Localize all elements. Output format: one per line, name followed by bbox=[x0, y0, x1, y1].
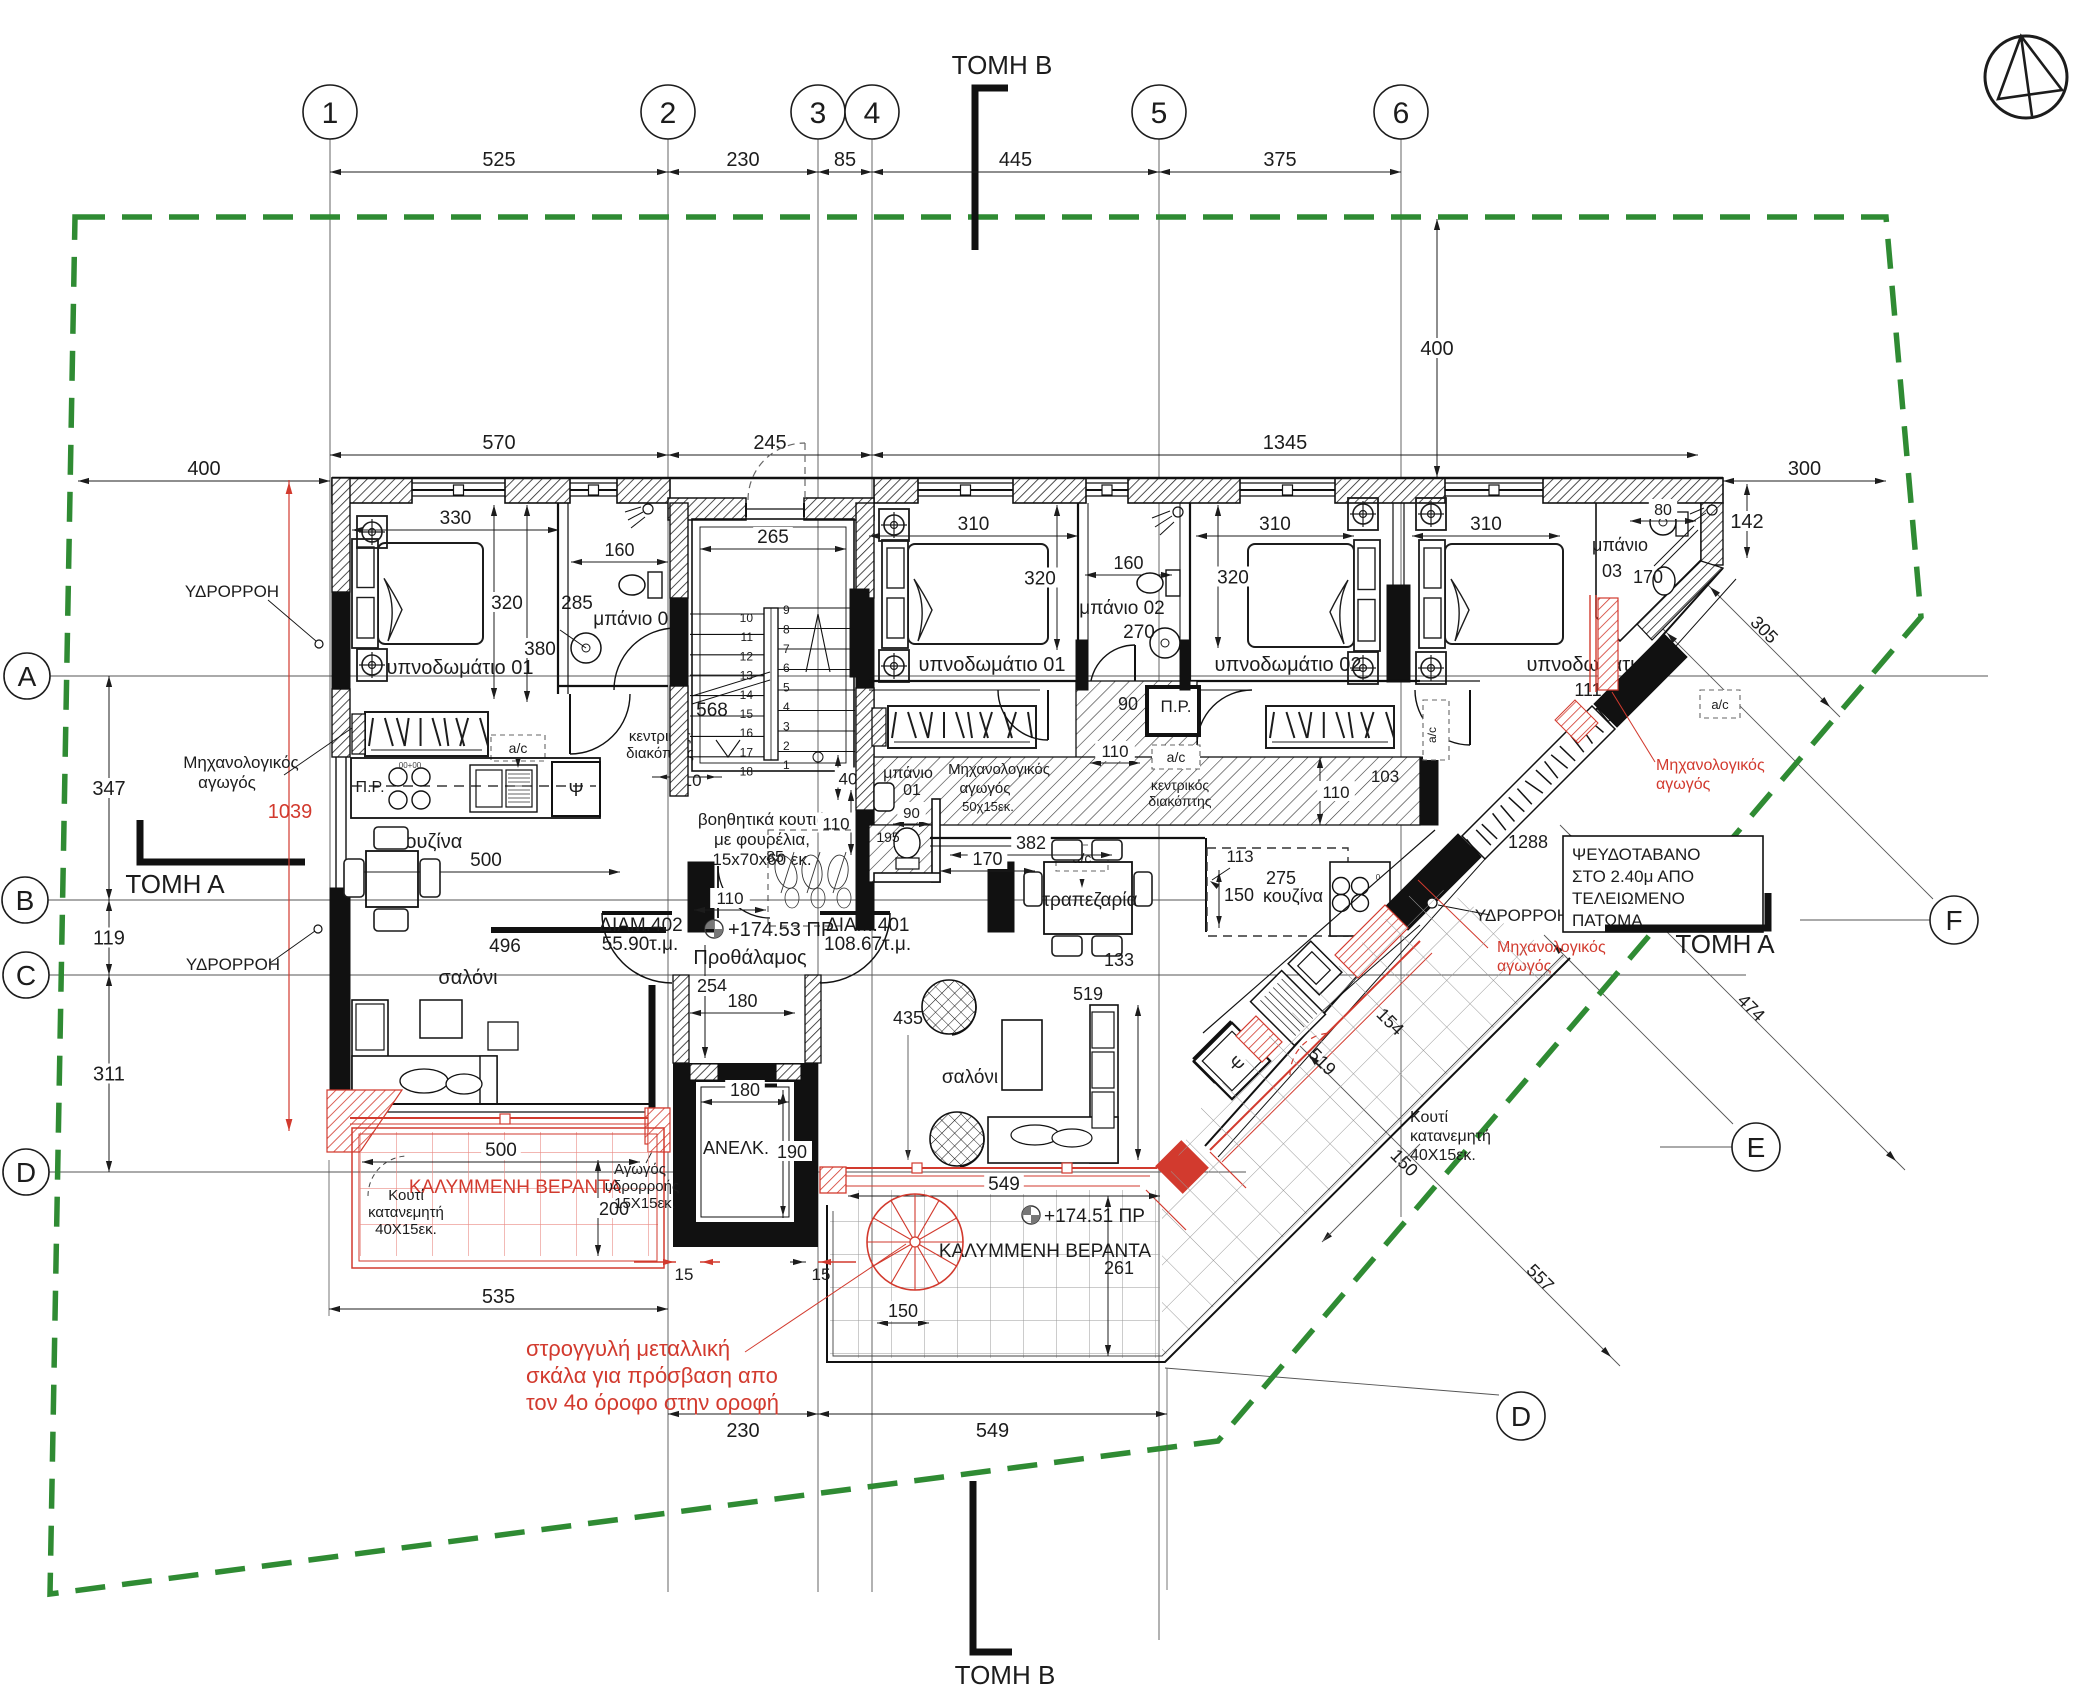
svg-text:549: 549 bbox=[988, 1174, 1020, 1195]
svg-text:85: 85 bbox=[834, 149, 856, 171]
svg-text:Μηχανολογικός: Μηχανολογικός bbox=[1656, 757, 1765, 774]
svg-text:570: 570 bbox=[482, 432, 515, 454]
svg-text:5: 5 bbox=[783, 681, 790, 695]
svg-text:90: 90 bbox=[903, 805, 920, 822]
svg-text:382: 382 bbox=[1016, 833, 1046, 853]
svg-text:549: 549 bbox=[976, 1420, 1009, 1442]
svg-text:285: 285 bbox=[561, 593, 593, 614]
svg-text:1: 1 bbox=[783, 758, 790, 772]
svg-text:40Χ15εκ.: 40Χ15εκ. bbox=[1410, 1147, 1476, 1164]
svg-text:519: 519 bbox=[1073, 984, 1103, 1004]
svg-text:a/c: a/c bbox=[1425, 727, 1439, 743]
svg-text:10: 10 bbox=[740, 611, 754, 625]
svg-text:265: 265 bbox=[757, 527, 789, 548]
svg-text:535: 535 bbox=[482, 1286, 515, 1308]
svg-text:1039: 1039 bbox=[268, 801, 313, 823]
svg-text:μπάνιο: μπάνιο bbox=[1592, 535, 1648, 555]
svg-text:01: 01 bbox=[903, 782, 921, 799]
svg-text:Μηχανολογικός: Μηχανολογικός bbox=[948, 761, 1050, 778]
svg-text:375: 375 bbox=[1263, 149, 1296, 171]
svg-text:Π.Ρ.: Π.Ρ. bbox=[355, 779, 384, 796]
svg-text:170: 170 bbox=[972, 849, 1002, 869]
svg-text:400: 400 bbox=[187, 458, 220, 480]
svg-text:110: 110 bbox=[1322, 783, 1349, 802]
svg-text:ΑΝΕΛΚ.: ΑΝΕΛΚ. bbox=[703, 1138, 769, 1158]
svg-text:Προθάλαμος: Προθάλαμος bbox=[693, 947, 807, 969]
svg-text:TOMH B: TOMH B bbox=[952, 50, 1053, 80]
svg-text:ΥΔΡΟΡΡΟΗ: ΥΔΡΟΡΡΟΗ bbox=[185, 582, 279, 601]
svg-text:υδρορροής: υδρορροής bbox=[605, 1178, 679, 1195]
svg-text:βοηθητικά κουτιά: βοηθητικά κουτιά bbox=[698, 810, 826, 829]
svg-text:15Χ15εκ.: 15Χ15εκ. bbox=[614, 1195, 676, 1212]
svg-text:μπάνιο 02: μπάνιο 02 bbox=[1079, 598, 1164, 619]
svg-text:445: 445 bbox=[999, 149, 1032, 171]
svg-text:7: 7 bbox=[783, 642, 790, 656]
svg-text:4: 4 bbox=[783, 700, 790, 714]
svg-text:2: 2 bbox=[660, 97, 677, 130]
svg-text:500: 500 bbox=[470, 850, 502, 871]
svg-text:E: E bbox=[1747, 1132, 1766, 1163]
svg-text:90: 90 bbox=[1118, 694, 1138, 714]
svg-text:διακόπτης: διακόπτης bbox=[1148, 793, 1211, 809]
svg-text:150: 150 bbox=[1224, 885, 1254, 905]
svg-text:300: 300 bbox=[1788, 458, 1821, 480]
svg-text:17: 17 bbox=[740, 745, 754, 759]
svg-text:496: 496 bbox=[489, 936, 521, 957]
svg-text:150: 150 bbox=[888, 1301, 918, 1321]
svg-text:6: 6 bbox=[1393, 97, 1410, 130]
svg-text:3: 3 bbox=[783, 719, 790, 733]
svg-text:15: 15 bbox=[740, 707, 754, 721]
svg-text:ΣΤΟ 2.40μ ΑΠΟ: ΣΤΟ 2.40μ ΑΠΟ bbox=[1572, 867, 1694, 886]
svg-text:03: 03 bbox=[1602, 561, 1622, 581]
svg-text:6: 6 bbox=[783, 661, 790, 675]
svg-text:230: 230 bbox=[726, 1420, 759, 1442]
svg-text:180: 180 bbox=[730, 1080, 760, 1100]
svg-text:12: 12 bbox=[740, 649, 754, 663]
svg-text:00+00: 00+00 bbox=[399, 761, 422, 770]
svg-text:TOMH B: TOMH B bbox=[955, 1660, 1056, 1690]
svg-text:υπνοδωμάτιο 01: υπνοδωμάτιο 01 bbox=[387, 657, 534, 679]
svg-text:τον 4ο όροφο στην οροφή: τον 4ο όροφο στην οροφή bbox=[526, 1390, 779, 1415]
svg-text:ΥΔΡΟΡΡΟΗ: ΥΔΡΟΡΡΟΗ bbox=[186, 955, 280, 974]
svg-text:190: 190 bbox=[777, 1142, 807, 1162]
svg-text:310: 310 bbox=[1470, 514, 1502, 535]
svg-text:80: 80 bbox=[1654, 502, 1672, 519]
svg-text:υπνοδωμάτιο 01: υπνοδωμάτιο 01 bbox=[919, 654, 1066, 676]
svg-text:ΨΕΥΔΟΤΑΒΑΝΟ: ΨΕΥΔΟΤΑΒΑΝΟ bbox=[1572, 845, 1700, 864]
svg-text:Αγωγός: Αγωγός bbox=[614, 1161, 666, 1178]
svg-text:Μηχανολογικός: Μηχανολογικός bbox=[183, 753, 298, 772]
svg-text:18: 18 bbox=[740, 765, 754, 779]
svg-text:2: 2 bbox=[783, 739, 790, 753]
svg-text:TOMH A: TOMH A bbox=[125, 869, 225, 899]
svg-text:υπνοδωμάτιο 02: υπνοδωμάτιο 02 bbox=[1215, 654, 1362, 676]
svg-text:3: 3 bbox=[810, 97, 827, 130]
svg-text:195: 195 bbox=[876, 829, 900, 845]
svg-text:στρογγυλή μεταλλική: στρογγυλή μεταλλική bbox=[526, 1336, 730, 1361]
svg-text:133: 133 bbox=[1104, 950, 1134, 970]
svg-text:a/c: a/c bbox=[1167, 749, 1186, 765]
svg-text:40Χ15εκ.: 40Χ15εκ. bbox=[375, 1221, 437, 1238]
svg-text:C: C bbox=[16, 960, 36, 991]
svg-text:330: 330 bbox=[440, 508, 472, 529]
svg-text:9: 9 bbox=[783, 603, 790, 617]
svg-text:αγωγός: αγωγός bbox=[198, 773, 256, 792]
svg-text:40: 40 bbox=[839, 770, 858, 789]
svg-text:15: 15 bbox=[812, 1265, 831, 1284]
svg-text:50χ15εκ.: 50χ15εκ. bbox=[962, 799, 1014, 814]
svg-text:Ψ: Ψ bbox=[568, 780, 583, 800]
svg-text:κουζίνα: κουζίνα bbox=[1263, 886, 1323, 906]
svg-text:400: 400 bbox=[1420, 338, 1453, 360]
svg-text:230: 230 bbox=[726, 149, 759, 171]
svg-text:142: 142 bbox=[1730, 511, 1763, 533]
svg-text:1345: 1345 bbox=[1263, 432, 1308, 454]
svg-text:a/c: a/c bbox=[1711, 697, 1729, 712]
svg-text:11: 11 bbox=[741, 630, 754, 644]
svg-text:14: 14 bbox=[740, 688, 754, 702]
svg-text:Π.Ρ.: Π.Ρ. bbox=[1161, 697, 1192, 716]
svg-text:5: 5 bbox=[1151, 97, 1168, 130]
svg-text:55.90τ.μ.: 55.90τ.μ. bbox=[602, 934, 679, 955]
svg-text:με φουρέλια,: με φουρέλια, bbox=[714, 830, 810, 849]
svg-text:160: 160 bbox=[1113, 553, 1143, 573]
svg-text:αγωγός: αγωγός bbox=[1656, 776, 1711, 793]
svg-text:4: 4 bbox=[864, 97, 881, 130]
svg-text:+174.51 ΠΡ: +174.51 ΠΡ bbox=[1044, 1206, 1145, 1227]
svg-text:275: 275 bbox=[1266, 868, 1296, 888]
svg-text:+174.53 ΠΡ: +174.53 ΠΡ bbox=[728, 919, 834, 941]
svg-text:310: 310 bbox=[958, 514, 990, 535]
svg-text:1288: 1288 bbox=[1508, 832, 1548, 852]
svg-text:310: 310 bbox=[1259, 514, 1291, 535]
svg-text:TOMH A: TOMH A bbox=[1675, 929, 1775, 959]
svg-text:κατανεμητή: κατανεμητή bbox=[368, 1204, 444, 1221]
svg-text:Κουτί: Κουτί bbox=[388, 1187, 424, 1204]
svg-text:119: 119 bbox=[93, 928, 125, 950]
svg-text:110: 110 bbox=[1101, 742, 1128, 761]
svg-text:320: 320 bbox=[491, 593, 523, 614]
svg-text:D: D bbox=[1511, 1401, 1531, 1432]
svg-text:160: 160 bbox=[604, 540, 634, 560]
svg-text:B: B bbox=[16, 885, 35, 916]
svg-text:a/c: a/c bbox=[509, 740, 528, 756]
svg-text:τραπεζαρία: τραπεζαρία bbox=[1043, 890, 1138, 911]
svg-text:15x70x60 εκ.: 15x70x60 εκ. bbox=[712, 850, 811, 869]
svg-text:15: 15 bbox=[675, 1265, 694, 1284]
svg-text:F: F bbox=[1945, 905, 1962, 936]
svg-text:113: 113 bbox=[1226, 847, 1253, 866]
svg-text:αγωγός: αγωγός bbox=[960, 780, 1011, 797]
svg-text:μπάνιο 01: μπάνιο 01 bbox=[593, 609, 678, 630]
svg-text:8: 8 bbox=[783, 622, 790, 636]
svg-text:σαλόνι: σαλόνι bbox=[942, 1067, 998, 1088]
svg-text:ΚΑΛΥΜΜΕΝΗ ΒΕΡΑΝΤΑ: ΚΑΛΥΜΜΕΝΗ ΒΕΡΑΝΤΑ bbox=[409, 1177, 622, 1198]
svg-text:A: A bbox=[18, 661, 37, 692]
svg-text:180: 180 bbox=[727, 991, 757, 1011]
svg-text:1: 1 bbox=[322, 97, 339, 130]
svg-text:311: 311 bbox=[93, 1064, 125, 1086]
svg-text:ΔΙΑΜ.402: ΔΙΑΜ.402 bbox=[599, 915, 682, 936]
svg-text:κεντρικός: κεντρικός bbox=[1151, 777, 1209, 793]
svg-text:110: 110 bbox=[716, 889, 743, 908]
svg-text:μπάνιο: μπάνιο bbox=[883, 765, 933, 782]
svg-text:16: 16 bbox=[740, 726, 754, 740]
svg-text:κατανεμητή: κατανεμητή bbox=[1410, 1128, 1491, 1145]
svg-text:ΤΕΛΕΙΩΜΕΝΟ: ΤΕΛΕΙΩΜΕΝΟ bbox=[1572, 889, 1685, 908]
svg-text:568: 568 bbox=[696, 700, 728, 721]
svg-text:500: 500 bbox=[485, 1140, 517, 1161]
svg-text:110: 110 bbox=[822, 815, 849, 834]
svg-text:103: 103 bbox=[1371, 767, 1399, 786]
svg-text:320: 320 bbox=[1024, 569, 1056, 590]
svg-text:435: 435 bbox=[893, 1008, 923, 1028]
svg-text:245: 245 bbox=[753, 432, 786, 454]
svg-text:347: 347 bbox=[92, 778, 125, 800]
svg-text:D: D bbox=[16, 1157, 36, 1188]
svg-text:108.67τ.μ.: 108.67τ.μ. bbox=[824, 934, 911, 955]
svg-text:525: 525 bbox=[482, 149, 515, 171]
svg-text:σαλόνι: σαλόνι bbox=[438, 967, 497, 989]
svg-text:254: 254 bbox=[697, 976, 727, 996]
svg-text:320: 320 bbox=[1217, 568, 1249, 589]
svg-text:σκάλα για πρόσβαση απο: σκάλα για πρόσβαση απο bbox=[526, 1363, 778, 1388]
